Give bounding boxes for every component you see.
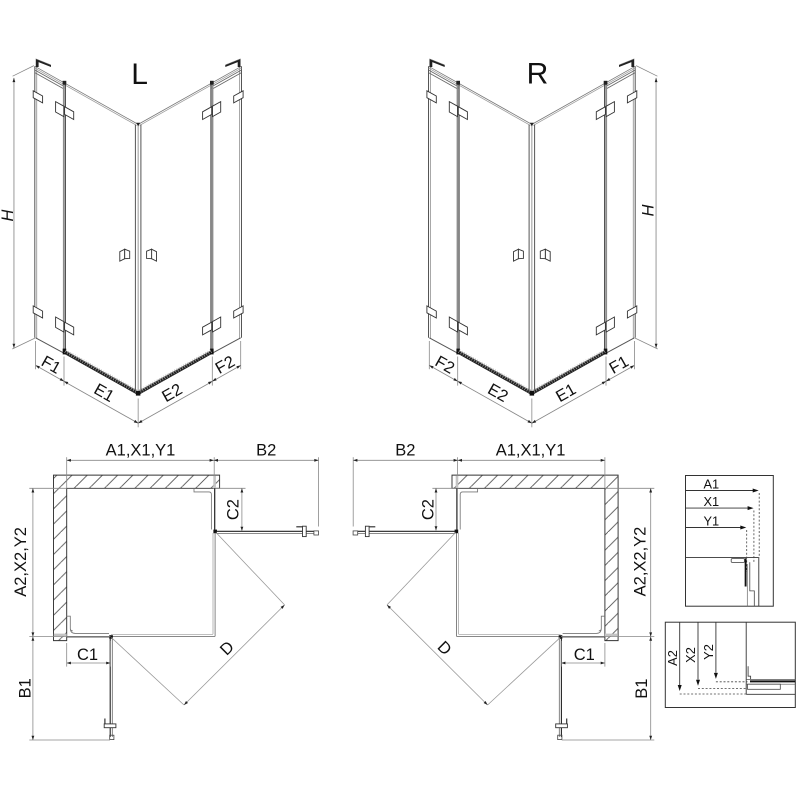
svg-text:C2: C2 xyxy=(420,499,438,520)
svg-text:A2,X2,Y2: A2,X2,Y2 xyxy=(632,527,650,597)
svg-text:C1: C1 xyxy=(77,646,98,664)
svg-text:X2: X2 xyxy=(683,647,698,663)
svg-text:B2: B2 xyxy=(256,441,276,459)
svg-text:H: H xyxy=(638,204,656,216)
svg-text:B1: B1 xyxy=(16,678,34,698)
svg-text:L: L xyxy=(131,58,148,91)
svg-text:C2: C2 xyxy=(225,499,243,520)
svg-text:Y2: Y2 xyxy=(701,644,716,660)
svg-text:C1: C1 xyxy=(574,646,595,664)
svg-text:A2,X2,Y2: A2,X2,Y2 xyxy=(12,527,30,597)
svg-text:H: H xyxy=(0,209,17,221)
svg-text:X1: X1 xyxy=(703,494,719,509)
svg-text:R: R xyxy=(527,58,549,91)
svg-text:A1,X1,Y1: A1,X1,Y1 xyxy=(106,441,176,459)
svg-text:A2: A2 xyxy=(665,650,680,666)
svg-text:A1: A1 xyxy=(703,476,719,491)
svg-text:Y1: Y1 xyxy=(703,513,719,528)
svg-text:B1: B1 xyxy=(633,679,651,699)
svg-text:B2: B2 xyxy=(395,441,415,459)
svg-text:A1,X1,Y1: A1,X1,Y1 xyxy=(496,441,566,459)
